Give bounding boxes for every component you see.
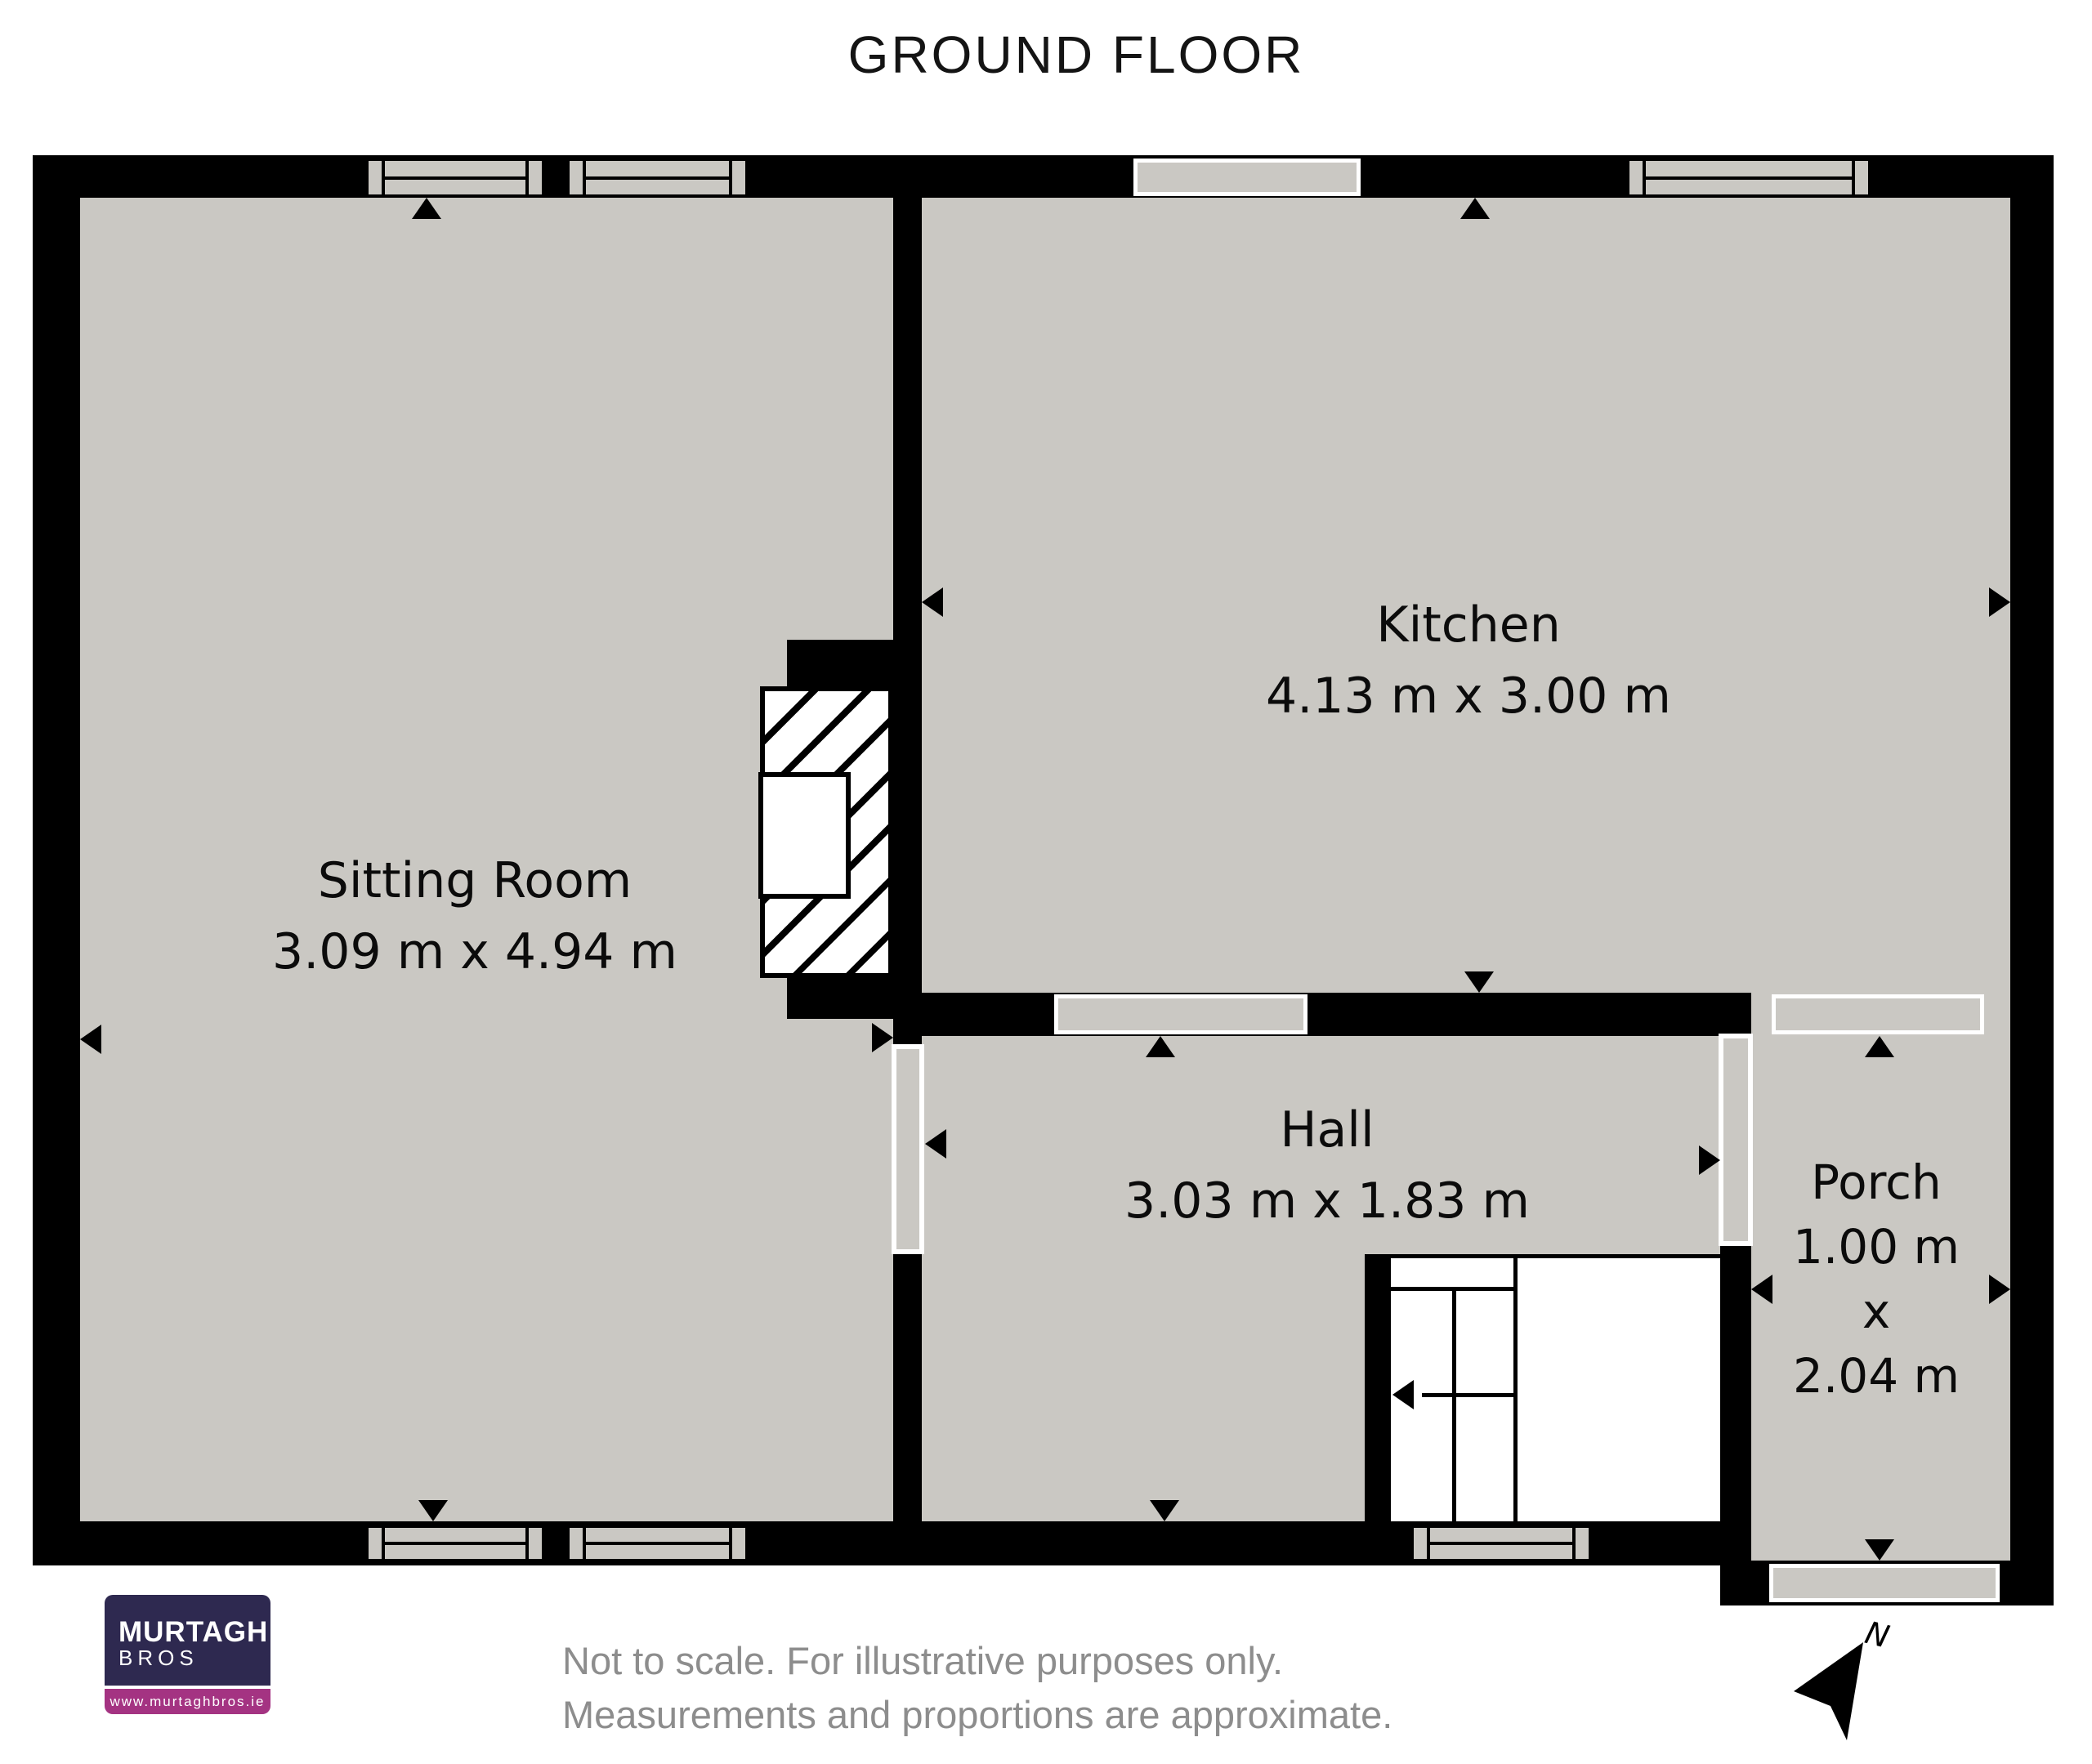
window-post [525, 161, 529, 194]
kitchen-hall-opening [1054, 994, 1307, 1034]
kitchen-top-right-window [1626, 158, 1871, 198]
porch-label: Porch 1.00 m x 2.04 m [1793, 1150, 1960, 1409]
floor-plan: GROUND FLOOR [0, 0, 2092, 1764]
logo: MURTAGH BROS www.murtaghbros.ie [105, 1595, 270, 1717]
kitchen-porch-opening [1772, 994, 1984, 1034]
sitting-room-top-window-right [566, 158, 749, 198]
sitting-room-top-window-left [365, 158, 545, 198]
room-name: Kitchen [1266, 590, 1671, 661]
logo-name-top: MURTAGH [118, 1616, 268, 1649]
chimney-stub-top [787, 640, 893, 686]
marker-triangle-down [1150, 1500, 1179, 1521]
room-dimensions: 3.03 m x 1.83 m [1124, 1166, 1530, 1237]
kitchen-top-opening [1133, 159, 1361, 196]
window-pane-line [586, 1542, 729, 1545]
right-wall [2010, 155, 2054, 1605]
kitchen-label: Kitchen 4.13 m x 3.00 m [1266, 590, 1671, 732]
marker-triangle-up [1865, 1036, 1894, 1057]
sitting-hall-wall [893, 1254, 922, 1521]
stairs-bottom-window [1410, 1525, 1592, 1562]
marker-triangle-up [1146, 1036, 1175, 1057]
room-dimensions: x [1793, 1279, 1960, 1344]
room-name: Hall [1124, 1095, 1530, 1166]
window-pane-line [1646, 176, 1852, 180]
disclaimer-line-1: Not to scale. For illustrative purposes … [562, 1634, 1392, 1688]
marker-triangle-down [1464, 971, 1494, 993]
marker-triangle-left [922, 587, 943, 617]
marker-triangle-left [80, 1025, 101, 1054]
window-post [729, 161, 732, 194]
window-post [1852, 161, 1855, 194]
marker-triangle-up [1460, 198, 1490, 219]
kitchen-hall-wall [922, 993, 1751, 1036]
left-wall [33, 155, 80, 1565]
stair-tread-line [1422, 1393, 1518, 1397]
sitting-kitchen-wall [893, 198, 922, 1044]
room-name: Porch [1793, 1150, 1960, 1215]
sitting-room-label: Sitting Room 3.09 m x 4.94 m [272, 846, 677, 988]
sitting-hall-door [892, 1044, 924, 1254]
marker-triangle-right [1699, 1145, 1720, 1175]
porch-bottom-opening [1769, 1564, 2000, 1602]
room-dimensions: 3.09 m x 4.94 m [272, 917, 677, 988]
disclaimer-line-2: Measurements and proportions are approxi… [562, 1688, 1392, 1742]
window-pane-line [385, 176, 525, 180]
stair-tread-line [1452, 1287, 1456, 1525]
sitting-room-bottom-window-right [566, 1525, 749, 1562]
marker-triangle-left [925, 1129, 946, 1159]
logo-navy-panel: MURTAGH BROS [105, 1595, 270, 1686]
room-name: Sitting Room [272, 846, 677, 917]
north-arrow-dart [1794, 1642, 1863, 1740]
hall-label: Hall 3.03 m x 1.83 m [1124, 1095, 1530, 1237]
stairs-direction-arrow [1392, 1380, 1414, 1409]
room-dimensions: 4.13 m x 3.00 m [1266, 661, 1671, 732]
room-dimensions: 1.00 m [1793, 1215, 1960, 1279]
north-label: N [1862, 1614, 1893, 1655]
window-pane-line [586, 176, 729, 180]
fireplace-hearth [758, 772, 851, 899]
north-arrow-icon: N [1794, 1610, 1916, 1753]
stairs [1391, 1254, 1720, 1521]
window-post [1572, 1528, 1576, 1559]
marker-triangle-up [412, 198, 441, 219]
marker-triangle-right [1989, 1275, 2010, 1304]
page-title: GROUND FLOOR [848, 25, 1305, 85]
logo-name-bottom: BROS [118, 1646, 199, 1671]
logo-website: www.murtaghbros.ie [105, 1689, 270, 1714]
disclaimer-text: Not to scale. For illustrative purposes … [562, 1634, 1392, 1742]
stair-tread-line [1513, 1258, 1518, 1525]
window-pane-line [1430, 1542, 1572, 1545]
window-post [525, 1528, 529, 1559]
window-post [729, 1528, 732, 1559]
marker-triangle-down [418, 1500, 448, 1521]
marker-triangle-left [1751, 1275, 1772, 1304]
window-pane-line [385, 1542, 525, 1545]
marker-triangle-right [1989, 587, 2010, 617]
room-dimensions: 2.04 m [1793, 1344, 1960, 1409]
marker-triangle-right [872, 1023, 893, 1052]
hall-porch-door [1719, 1034, 1753, 1246]
chimney-stub-bottom [787, 978, 893, 1019]
stairs-side-wall [1365, 1254, 1391, 1521]
sitting-room-bottom-window-left [365, 1525, 545, 1562]
marker-triangle-down [1865, 1539, 1894, 1561]
